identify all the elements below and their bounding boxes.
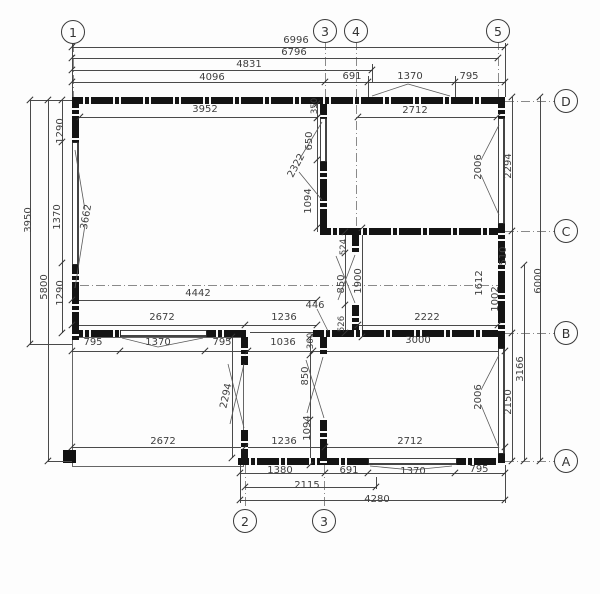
dim-label-c2322: 2322 <box>287 152 308 179</box>
dim-label-b1370: 1370 <box>145 338 170 348</box>
dim-label-m446: 446 <box>305 301 324 311</box>
dim-label-l5800: 5800 <box>40 274 50 299</box>
grid-axis-line <box>80 285 498 286</box>
grid-marker-rA: A <box>554 449 578 473</box>
extension-line <box>30 100 72 101</box>
dim-label-r3166: 3166 <box>516 356 526 381</box>
dim-label-b795a: 795 <box>83 338 102 348</box>
grid-marker-g5: 5 <box>486 19 510 43</box>
dim-label-r1002: 1002 <box>491 286 501 311</box>
dimension-line <box>358 325 498 326</box>
dim-label-f691: 691 <box>339 466 358 476</box>
dim-label-r2150: 2150 <box>504 389 514 414</box>
wall-segment <box>320 104 327 118</box>
dimension-line <box>232 337 233 458</box>
dimension-line <box>72 325 317 326</box>
extension-line <box>48 461 72 462</box>
dim-label-f1370: 1370 <box>400 467 425 477</box>
dim-label-r510: 510 <box>499 246 509 265</box>
dim-label-t691: 691 <box>342 72 361 82</box>
grid-marker-g3: 3 <box>313 19 337 43</box>
dim-label-r2006b: 2006 <box>474 384 484 409</box>
dim-label-f2115: 2115 <box>294 481 319 491</box>
grid-axis-line <box>505 461 557 462</box>
dim-label-f795: 795 <box>469 465 488 475</box>
dim-label-r2006a: 2006 <box>474 154 484 179</box>
dim-label-b3000: 3000 <box>405 336 430 346</box>
wall-segment <box>238 458 368 465</box>
dim-label-b1036: 1036 <box>270 338 295 348</box>
grid-marker-rC: C <box>554 219 578 243</box>
dim-label-b795b: 795 <box>212 338 231 348</box>
window-opening <box>120 330 207 337</box>
window-opening <box>320 118 327 162</box>
grid-axis-line <box>73 43 74 100</box>
dim-label-l1290b: 1290 <box>56 280 66 305</box>
dim-tick <box>313 321 320 328</box>
dim-label-l3950: 3950 <box>24 207 34 232</box>
wall-segment <box>205 330 248 337</box>
dimension-line <box>310 337 311 465</box>
grid-marker-g1: 1 <box>61 20 85 44</box>
dim-label-b1236: 1236 <box>271 313 296 323</box>
grid-marker-g4: 4 <box>344 19 368 43</box>
dim-label-t6996: 6996 <box>283 36 308 46</box>
dim-label-c650: 650 <box>305 131 315 150</box>
dim-label-f1380: 1380 <box>267 466 292 476</box>
dim-label-b360: 360 <box>306 333 316 349</box>
dim-label-g850: 850 <box>301 366 311 385</box>
dimension-line <box>72 300 317 301</box>
dim-label-m850: 850 <box>337 274 347 293</box>
floor-plan-drawing: 6996679648314096691137079539522712395058… <box>0 0 600 594</box>
dim-tick <box>58 329 65 336</box>
dim-label-m524: 524 <box>339 239 349 255</box>
dimension-line <box>72 447 505 448</box>
dim-label-t2712: 2712 <box>402 106 427 116</box>
dim-label-m526: 526 <box>337 316 347 332</box>
dim-label-t4831: 4831 <box>236 60 261 70</box>
dim-label-t795: 795 <box>459 72 478 82</box>
dim-label-r2294: 2294 <box>504 153 514 178</box>
dimension-line <box>317 104 318 232</box>
dim-label-r6000: 6000 <box>534 268 544 293</box>
grid-marker-rD: D <box>554 89 578 113</box>
wall-segment <box>498 222 505 348</box>
dim-label-l3662: 3662 <box>80 204 94 231</box>
grid-axis-line <box>325 41 326 97</box>
dimension-line <box>72 58 498 59</box>
dim-label-m1612: 1612 <box>475 270 485 295</box>
dim-label-t4096: 4096 <box>199 73 224 83</box>
grid-marker-b3: 3 <box>312 509 336 533</box>
dim-label-t1370: 1370 <box>397 72 422 82</box>
extension-line <box>505 43 506 97</box>
wall-segment <box>72 263 79 340</box>
dim-label-f4280: 4280 <box>364 495 389 505</box>
grid-axis-line <box>498 41 499 97</box>
dim-label-b2222: 2222 <box>414 313 439 323</box>
dim-label-b2672: 2672 <box>149 313 174 323</box>
wall-segment <box>320 337 327 355</box>
dim-label-c1094: 1094 <box>304 188 314 213</box>
dim-label-g1094: 1094 <box>303 415 313 440</box>
dimension-line <box>80 117 318 118</box>
dimension-line <box>72 82 505 83</box>
dim-label-t3952: 3952 <box>192 105 217 115</box>
dim-label-f2672: 2672 <box>150 437 175 447</box>
dim-label-m1900: 1900 <box>354 268 364 293</box>
dim-label-f1236: 1236 <box>271 437 296 447</box>
leader-lines <box>0 0 600 594</box>
window-opening <box>72 142 79 265</box>
dim-label-l1370: 1370 <box>53 204 63 229</box>
wall-segment <box>72 330 120 337</box>
dim-label-t6796: 6796 <box>281 48 306 58</box>
wall-segment <box>72 97 505 104</box>
window-opening <box>368 458 457 465</box>
wall-segment <box>352 235 359 253</box>
dim-label-l1290a: 1290 <box>56 118 66 143</box>
dim-label-f2712: 2712 <box>397 437 422 447</box>
extension-line <box>30 344 72 345</box>
dimension-line <box>72 351 505 352</box>
dimension-line <box>358 117 497 118</box>
wall-segment <box>320 420 327 465</box>
wall-segment <box>320 160 327 228</box>
dim-label-b4442: 4442 <box>185 289 210 299</box>
grid-marker-b2: 2 <box>233 509 257 533</box>
dim-label-c350: 350 <box>310 98 320 114</box>
dimension-line <box>72 70 372 71</box>
opening-line <box>250 332 313 333</box>
grid-marker-rB: B <box>554 321 578 345</box>
dim-tick <box>372 483 379 490</box>
